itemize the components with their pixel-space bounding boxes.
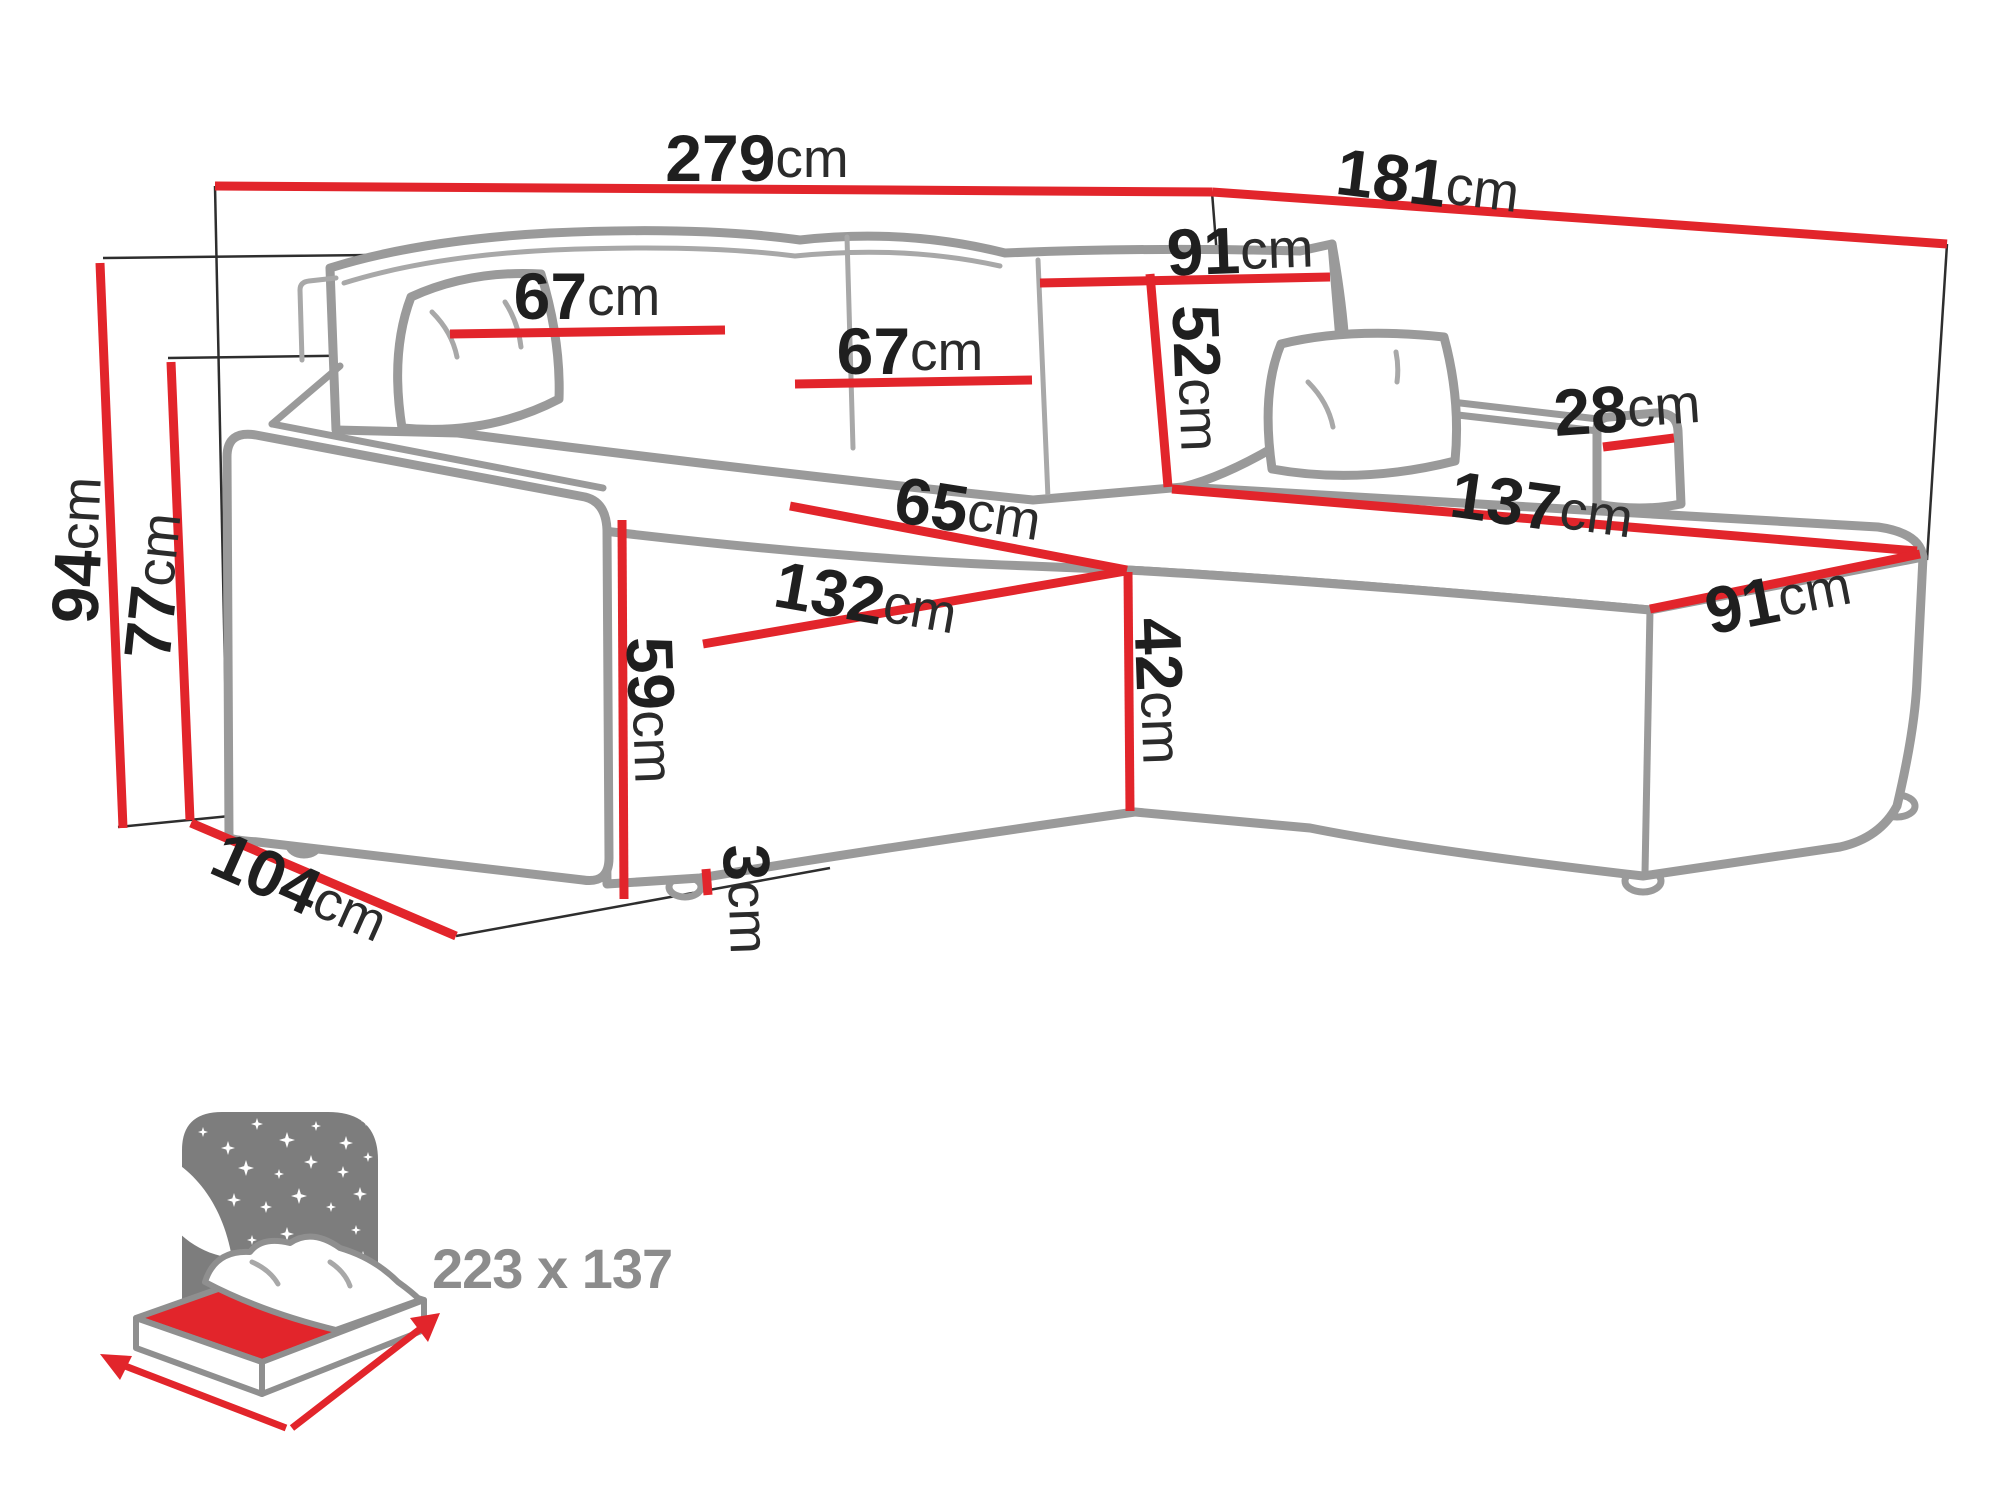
- dim-label-42: 42cm: [1120, 616, 1199, 765]
- dimension-line-3: [706, 869, 708, 895]
- dim-label-59: 59cm: [612, 635, 691, 784]
- sleeping-area-icon: 223 x 137: [100, 1112, 672, 1428]
- dim-label-67-left: 67cm: [514, 259, 661, 333]
- dimension-line-181: [1212, 192, 1947, 244]
- dim-label-279: 279cm: [665, 121, 848, 195]
- dim-label-67-mid: 67cm: [837, 314, 984, 388]
- dim-label-3: 3cm: [709, 843, 787, 956]
- dim-label-77: 77cm: [110, 509, 199, 663]
- dim-label-52: 52cm: [1158, 303, 1237, 452]
- bed-icon: [100, 1237, 440, 1428]
- dim-label-91-top: 91cm: [1165, 210, 1314, 289]
- dim-label-94: 94cm: [37, 475, 119, 625]
- sofa-dimension-diagram: 279cm 181cm 94cm 77cm 104cm 67cm 67cm 91…: [0, 0, 2000, 1500]
- left-armrest: [227, 434, 609, 880]
- dimension-line-67-left: [450, 330, 725, 334]
- bed-size-label: 223 x 137: [432, 1237, 672, 1300]
- right-pillow: [1268, 333, 1456, 475]
- dim-label-181: 181cm: [1332, 134, 1523, 230]
- chaise-front-seam: [1645, 610, 1650, 873]
